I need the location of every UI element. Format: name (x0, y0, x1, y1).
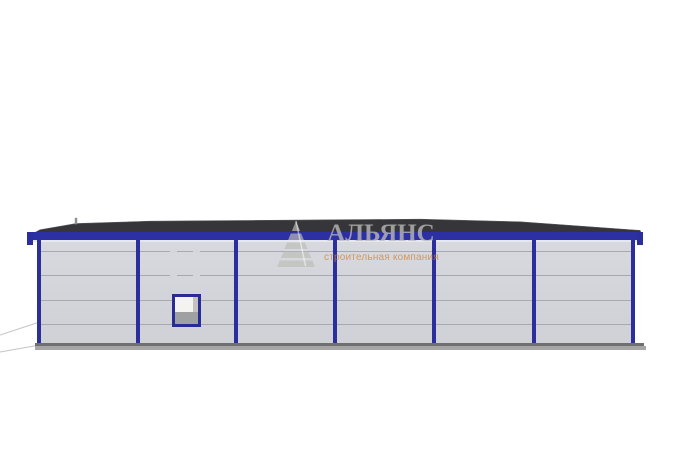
watermark-tagline-text: строительная компания (324, 252, 438, 263)
plinth (35, 346, 646, 351)
render-canvas: АЛЬЯНС строительная компания (0, 0, 700, 474)
panel-joint-gap (193, 274, 200, 277)
eave-beam-cap-left (27, 232, 33, 245)
steel-column (234, 240, 238, 344)
ground-line-lower (0, 346, 37, 353)
eave-beam-cap-right (637, 232, 643, 245)
steel-column (631, 240, 635, 344)
window-sill-shadow (175, 312, 198, 324)
roof-vent (75, 218, 77, 225)
window (172, 294, 201, 327)
panel-joint-gap (193, 250, 200, 253)
steel-column (136, 240, 140, 344)
steel-column (37, 240, 41, 344)
ground-line-upper (0, 323, 38, 336)
watermark-brand-text: АЛЬЯНС (325, 221, 437, 246)
panel-joint-gap (170, 274, 177, 277)
steel-column (532, 240, 536, 344)
panel-joint-gap (170, 250, 177, 253)
